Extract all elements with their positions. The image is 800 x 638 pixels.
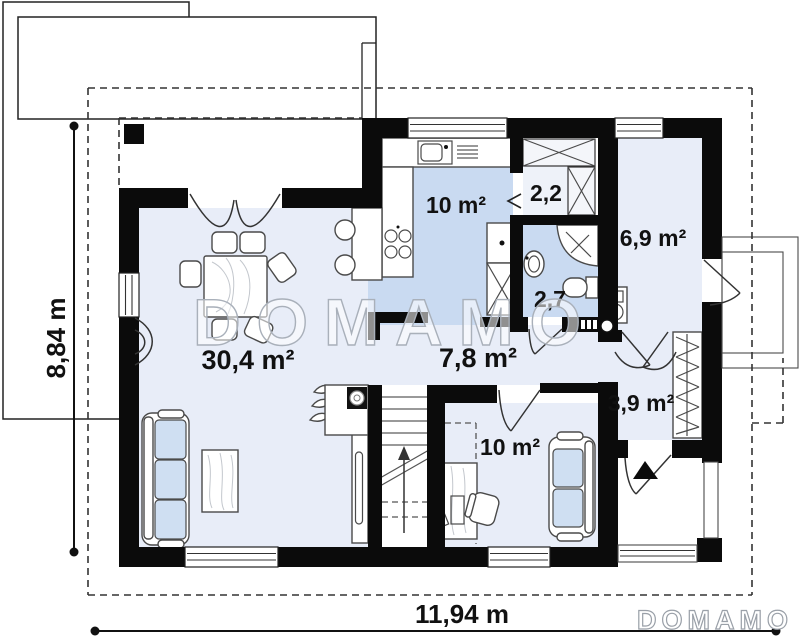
bar-stool [335,255,355,275]
kitchen-counter [382,167,413,277]
washbasin [524,251,544,277]
side-porch [722,237,798,368]
tv-cabinet [352,433,368,543]
floor-plan: 8,84 m 11,94 m 10 m² 2,2 6,9 m² 2,7 30,4… [0,0,800,638]
sofa-cushion [553,489,583,527]
dimension-height: 8,84 m [41,122,79,557]
room-label-entry-hall: 6,9 m² [620,225,687,251]
wardrobe-closet [673,332,702,438]
sofa-cushion [155,500,186,539]
dining-chair [240,232,265,253]
sofa-cushion [553,449,583,487]
floor-plan-drawing: 8,84 m 11,94 m 10 m² 2,2 6,9 m² 2,7 30,4… [0,0,800,638]
room-label-pantry: 2,2 [530,180,562,206]
room-label-kitchen: 10 m² [426,192,486,218]
room-label-wardrobe: 3,9 m² [608,390,675,416]
kitchen-peninsula [352,208,382,280]
dining-chair [212,232,237,253]
entrance-steps [618,545,697,562]
dining-chair [180,261,201,287]
window [615,118,663,138]
sofa-cushion [155,460,186,499]
window [488,547,550,567]
window [185,547,278,567]
height-dimension-label: 8,84 m [41,298,71,379]
chimney [124,124,144,144]
entrance-arrow-icon [633,461,658,479]
window [408,118,507,138]
kitchen-counter [382,138,513,167]
faucet [444,145,448,149]
room-label-office: 10 m² [480,434,540,460]
width-dimension-label: 11,94 m [415,599,509,629]
window [119,273,139,317]
watermark: DOMAMO [193,285,597,359]
bar-stool [335,220,355,240]
terrace-roof-edge [119,118,362,189]
sofa-cushion [155,420,186,459]
brand-logo: DOMAMO [637,605,793,635]
